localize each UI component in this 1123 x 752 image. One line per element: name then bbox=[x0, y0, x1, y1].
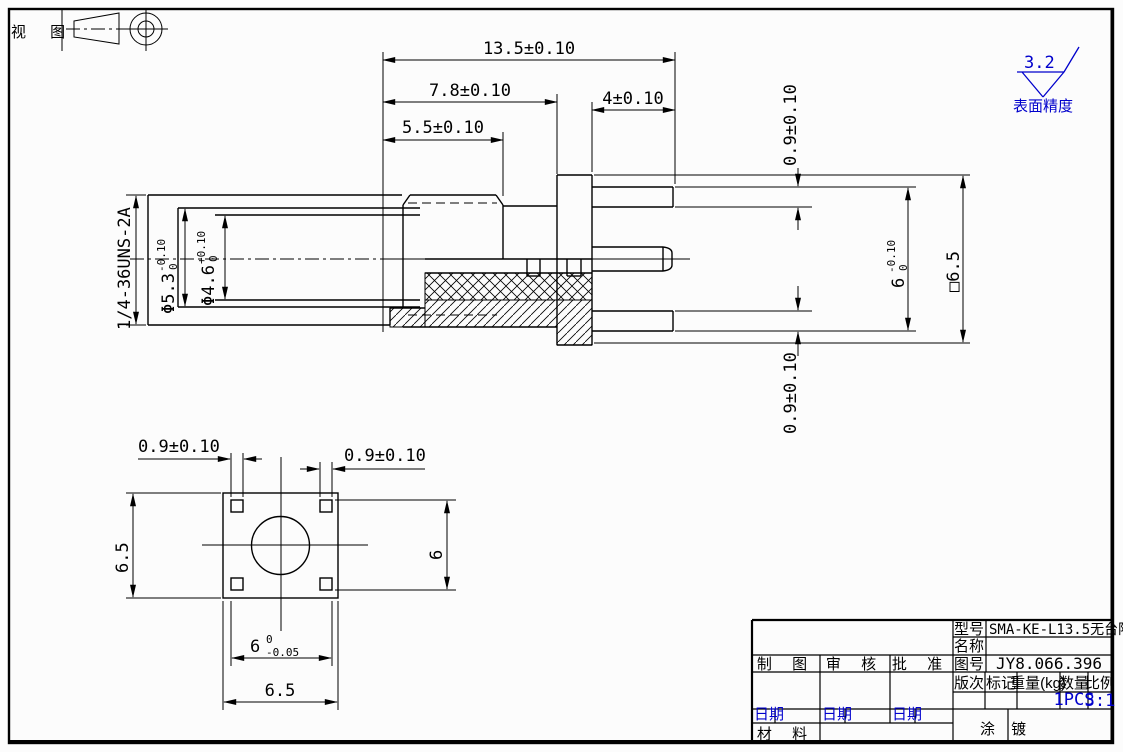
dim-dia-4-6: Φ4.6 +0.10 0 bbox=[195, 231, 220, 306]
dwgno-value: JY8.066.396 bbox=[996, 654, 1102, 673]
dim-leg-left: 0.9±0.10 bbox=[138, 437, 220, 457]
projection-symbols: 视 图 bbox=[11, 8, 168, 51]
dim-leg-bottom-thickness: 0.9±0.10 bbox=[781, 352, 801, 434]
main-view-dimensions: 13.5±0.10 7.8±0.10 5.5±0.10 4±0.10 0.9±0… bbox=[115, 39, 970, 434]
svg-text:0: 0 bbox=[266, 633, 273, 646]
date-label-3: 日期 bbox=[892, 706, 922, 723]
surface-finish-value: 3.2 bbox=[1024, 53, 1055, 73]
svg-text:-0.05: -0.05 bbox=[266, 646, 299, 659]
approved-by-label: 批 准 bbox=[892, 656, 950, 673]
svg-text:0: 0 bbox=[167, 263, 180, 270]
dim-leg-top-thickness: 0.9±0.10 bbox=[781, 84, 801, 166]
dim-width-outer: 6.5 bbox=[265, 681, 296, 701]
svg-text:Φ4.6: Φ4.6 bbox=[199, 265, 219, 306]
dim-total-length: 13.5±0.10 bbox=[483, 39, 575, 59]
dim-height-6: 6 -0.10 0 bbox=[885, 240, 910, 288]
dim-width-inner: 6 0 -0.05 bbox=[250, 633, 299, 659]
leg-bottom-left bbox=[231, 578, 243, 590]
scale-value: 3:1 bbox=[1085, 691, 1116, 711]
leg-top-right bbox=[320, 500, 332, 512]
svg-text:0: 0 bbox=[207, 255, 220, 262]
model-label: 型号 bbox=[954, 621, 984, 638]
front-view-dimensions: 0.9±0.10 0.9±0.10 6.5 6 6 0 -0.05 6.5 bbox=[113, 437, 456, 710]
dwgno-label: 图号 bbox=[954, 656, 984, 673]
svg-text:0: 0 bbox=[897, 264, 910, 271]
body-section-hatch bbox=[425, 300, 557, 327]
leg-bottom-right bbox=[320, 578, 332, 590]
rev-label: 版次 bbox=[954, 675, 984, 692]
leg-top-left bbox=[231, 500, 243, 512]
flange-section-hatch bbox=[557, 300, 592, 345]
svg-text:6: 6 bbox=[250, 637, 260, 657]
date-label-2: 日期 bbox=[822, 706, 852, 723]
svg-text:Φ5.3: Φ5.3 bbox=[159, 273, 179, 314]
drawing-sheet: 视 图 3.2 表面精度 bbox=[0, 0, 1123, 752]
date-label-1: 日期 bbox=[754, 706, 784, 723]
dim-nut-length: 5.5±0.10 bbox=[402, 118, 484, 138]
dim-leg-length: 4±0.10 bbox=[602, 89, 663, 109]
model-value: SMA-KE-L13.5无台阶 bbox=[989, 622, 1123, 638]
cad-drawing: 视 图 3.2 表面精度 bbox=[0, 0, 1123, 752]
insulator-hatch bbox=[425, 273, 592, 300]
dim-leg-right: 0.9±0.10 bbox=[344, 446, 426, 466]
svg-text:6: 6 bbox=[889, 278, 909, 288]
dim-body-length: 7.8±0.10 bbox=[429, 81, 511, 101]
reviewed-by-label: 审 核 bbox=[826, 656, 884, 673]
page-border bbox=[8, 9, 1114, 743]
surface-finish-caption: 表面精度 bbox=[1013, 98, 1073, 115]
coating-label: 涂 镀 bbox=[980, 721, 1032, 738]
view-label: 视 图 bbox=[11, 24, 75, 41]
name-label: 名称 bbox=[954, 638, 984, 655]
title-block: 型号 SMA-KE-L13.5无台阶 名称 图号 JY8.066.396 版次 … bbox=[752, 620, 1123, 743]
front-view bbox=[202, 457, 368, 631]
dim-height-right: 6 bbox=[427, 550, 447, 560]
step-section-hatch bbox=[390, 308, 425, 327]
dim-height-left: 6.5 bbox=[113, 542, 133, 573]
drawn-by-label: 制 图 bbox=[757, 656, 815, 673]
dim-square-6-5: □6.5 bbox=[944, 251, 964, 292]
surface-finish-symbol: 3.2 表面精度 bbox=[1013, 47, 1079, 115]
dim-thread-spec: 1/4-36UNS-2A bbox=[115, 207, 135, 330]
dim-dia-5-3: Φ5.3 -0.10 0 bbox=[155, 239, 180, 314]
material-label: 材 料 bbox=[757, 726, 815, 743]
circle-projection-icon bbox=[124, 8, 168, 51]
